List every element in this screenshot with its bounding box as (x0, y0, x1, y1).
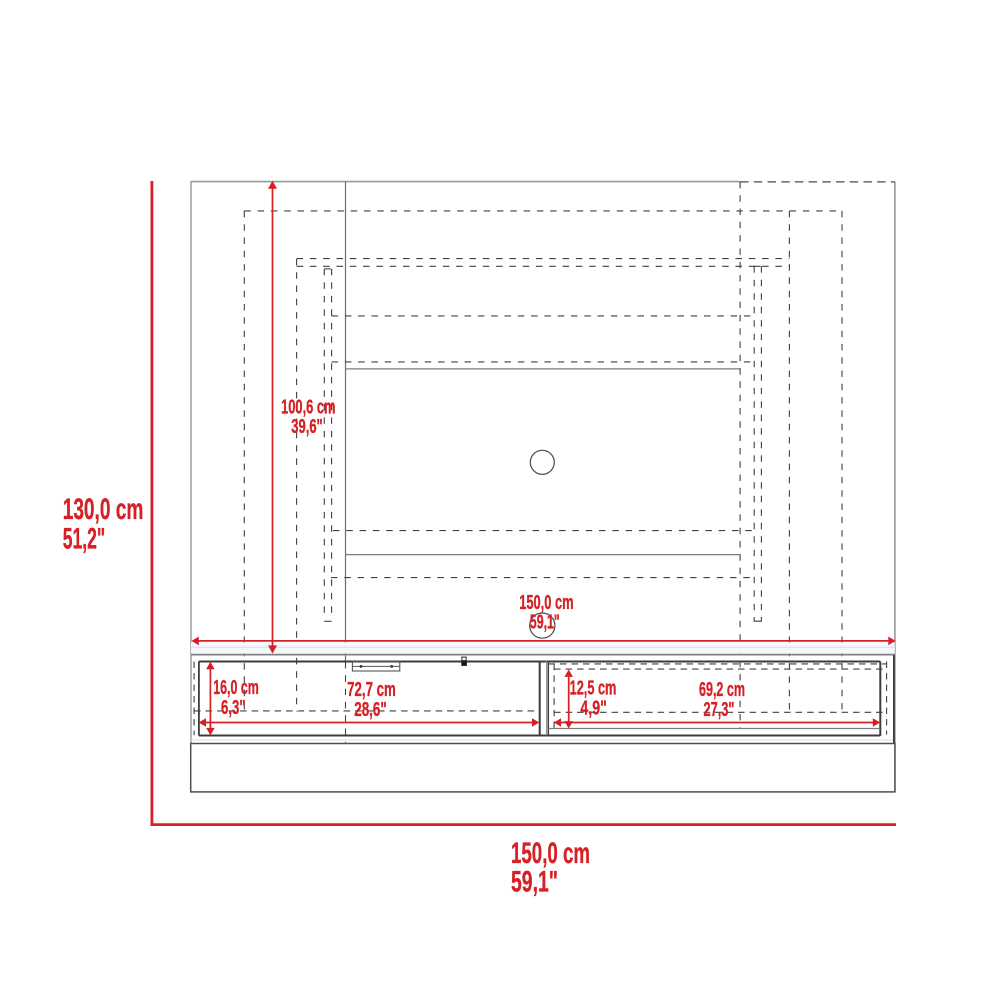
svg-text:27,3": 27,3" (704, 699, 735, 721)
svg-text:130,0 cm: 130,0 cm (63, 493, 144, 526)
svg-text:28,6": 28,6" (354, 699, 387, 721)
svg-text:59,1": 59,1" (530, 612, 560, 634)
svg-text:16,0 cm: 16,0 cm (213, 677, 259, 699)
svg-text:69,2 cm: 69,2 cm (699, 679, 745, 701)
svg-text:72,7 cm: 72,7 cm (347, 679, 396, 701)
svg-text:4,9": 4,9" (580, 698, 606, 720)
svg-text:12,5 cm: 12,5 cm (570, 678, 617, 700)
svg-text:39,6": 39,6" (291, 416, 322, 438)
svg-text:6,3": 6,3" (221, 697, 246, 719)
svg-text:51,2": 51,2" (63, 523, 105, 556)
svg-text:59,1": 59,1" (511, 866, 558, 899)
